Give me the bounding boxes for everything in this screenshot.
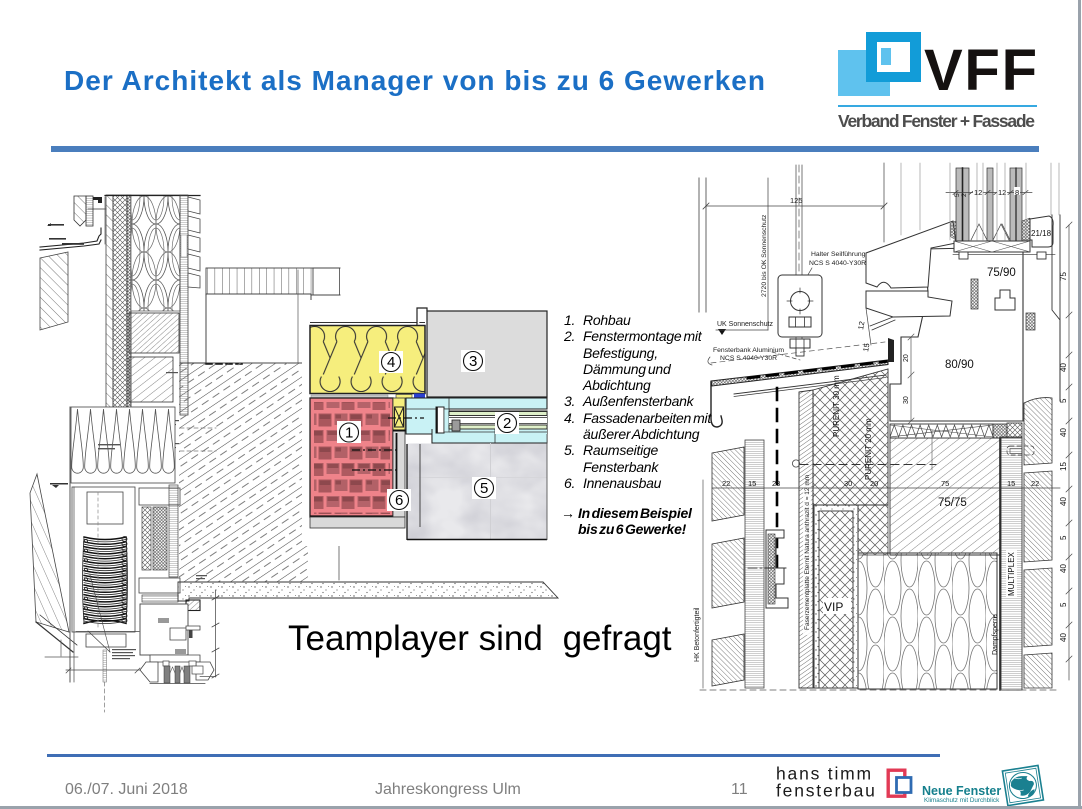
svg-text:6: 6 [395,492,403,509]
svg-text:5: 5 [954,193,961,197]
svg-text:PURENIT 20 mm: PURENIT 20 mm [864,418,873,480]
svg-text:Dampfsperre: Dampfsperre [992,614,999,655]
svg-text:15: 15 [748,479,756,488]
svg-text:5: 5 [1059,535,1068,540]
svg-text:2720 bis OK Sonnenschutz: 2720 bis OK Sonnenschutz [761,214,768,297]
svg-text:23: 23 [772,479,780,488]
svg-text:5: 5 [1059,602,1068,607]
svg-text:125: 125 [790,196,803,205]
svg-text:Halter Seilführung: Halter Seilführung [811,251,866,258]
svg-text:22: 22 [722,479,730,488]
svg-text:21/18: 21/18 [1031,229,1052,238]
svg-text:2: 2 [961,193,968,197]
svg-text:30: 30 [903,396,910,404]
svg-text:Fensterbank Aluminium: Fensterbank Aluminium [713,347,784,354]
svg-text:1: 1 [345,425,353,442]
svg-text:MULTIPLEX: MULTIPLEX [1007,551,1016,596]
svg-text:Faserzementplatte Eternit Natu: Faserzementplatte Eternit Natura anthraz… [804,475,811,630]
svg-text:PURENIT 30 mm: PURENIT 30 mm [832,375,841,437]
svg-text:NCS S 4040-Y30R: NCS S 4040-Y30R [809,260,866,267]
svg-text:75/90: 75/90 [987,267,1016,279]
svg-text:8: 8 [1015,188,1019,197]
svg-text:75/75: 75/75 [938,497,967,509]
svg-text:3: 3 [469,353,477,370]
svg-text:4: 4 [387,354,395,371]
svg-text:30: 30 [844,479,852,488]
svg-text:12: 12 [974,188,982,197]
svg-text:15: 15 [861,343,871,353]
svg-text:75: 75 [1059,272,1068,281]
svg-text:VIP: VIP [824,600,843,614]
svg-text:40: 40 [1059,564,1068,573]
svg-text:40: 40 [1059,428,1068,437]
svg-text:75: 75 [941,479,949,488]
svg-text:80/90: 80/90 [945,359,974,371]
svg-text:2: 2 [503,415,511,432]
svg-text:UK Sonnenschutz: UK Sonnenschutz [717,321,774,328]
svg-text:40: 40 [1059,633,1068,642]
svg-text:20: 20 [903,354,910,362]
svg-text:15: 15 [1059,462,1068,471]
svg-text:40: 40 [1059,363,1068,372]
svg-text:12: 12 [856,321,866,331]
svg-text:fensterbau: fensterbau [776,781,877,801]
svg-text:HK Betonfertigteil: HK Betonfertigteil [694,607,701,662]
svg-text:40: 40 [1059,497,1068,506]
svg-text:20: 20 [870,479,878,488]
svg-text:5: 5 [480,480,488,497]
svg-text:5: 5 [1059,398,1068,403]
